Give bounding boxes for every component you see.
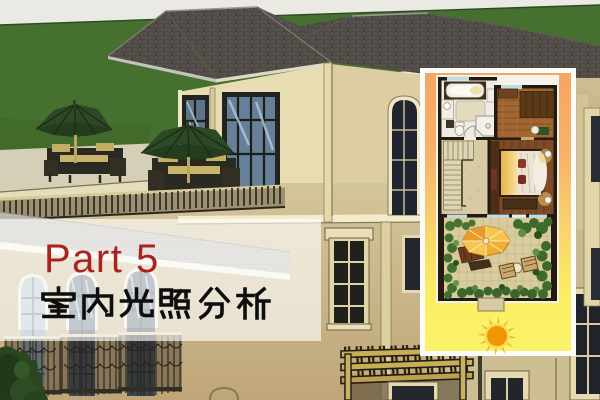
- svg-text:Part 5: Part 5: [44, 237, 160, 281]
